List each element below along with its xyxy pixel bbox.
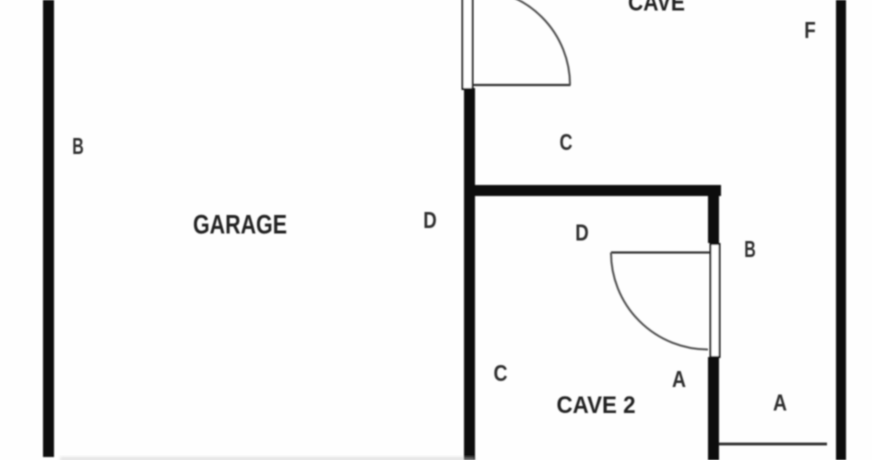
svg-text:D: D [575,220,589,246]
svg-text:F: F [804,17,816,43]
svg-text:C: C [494,360,508,386]
svg-text:CAVE: CAVE [628,0,685,17]
svg-text:CAVE 2: CAVE 2 [557,392,636,419]
svg-text:D: D [423,207,437,233]
svg-text:A: A [672,366,686,392]
svg-text:B: B [72,133,84,159]
svg-text:GARAGE: GARAGE [193,210,287,240]
svg-text:C: C [560,129,573,155]
svg-text:A: A [773,390,787,416]
svg-text:B: B [744,236,756,262]
